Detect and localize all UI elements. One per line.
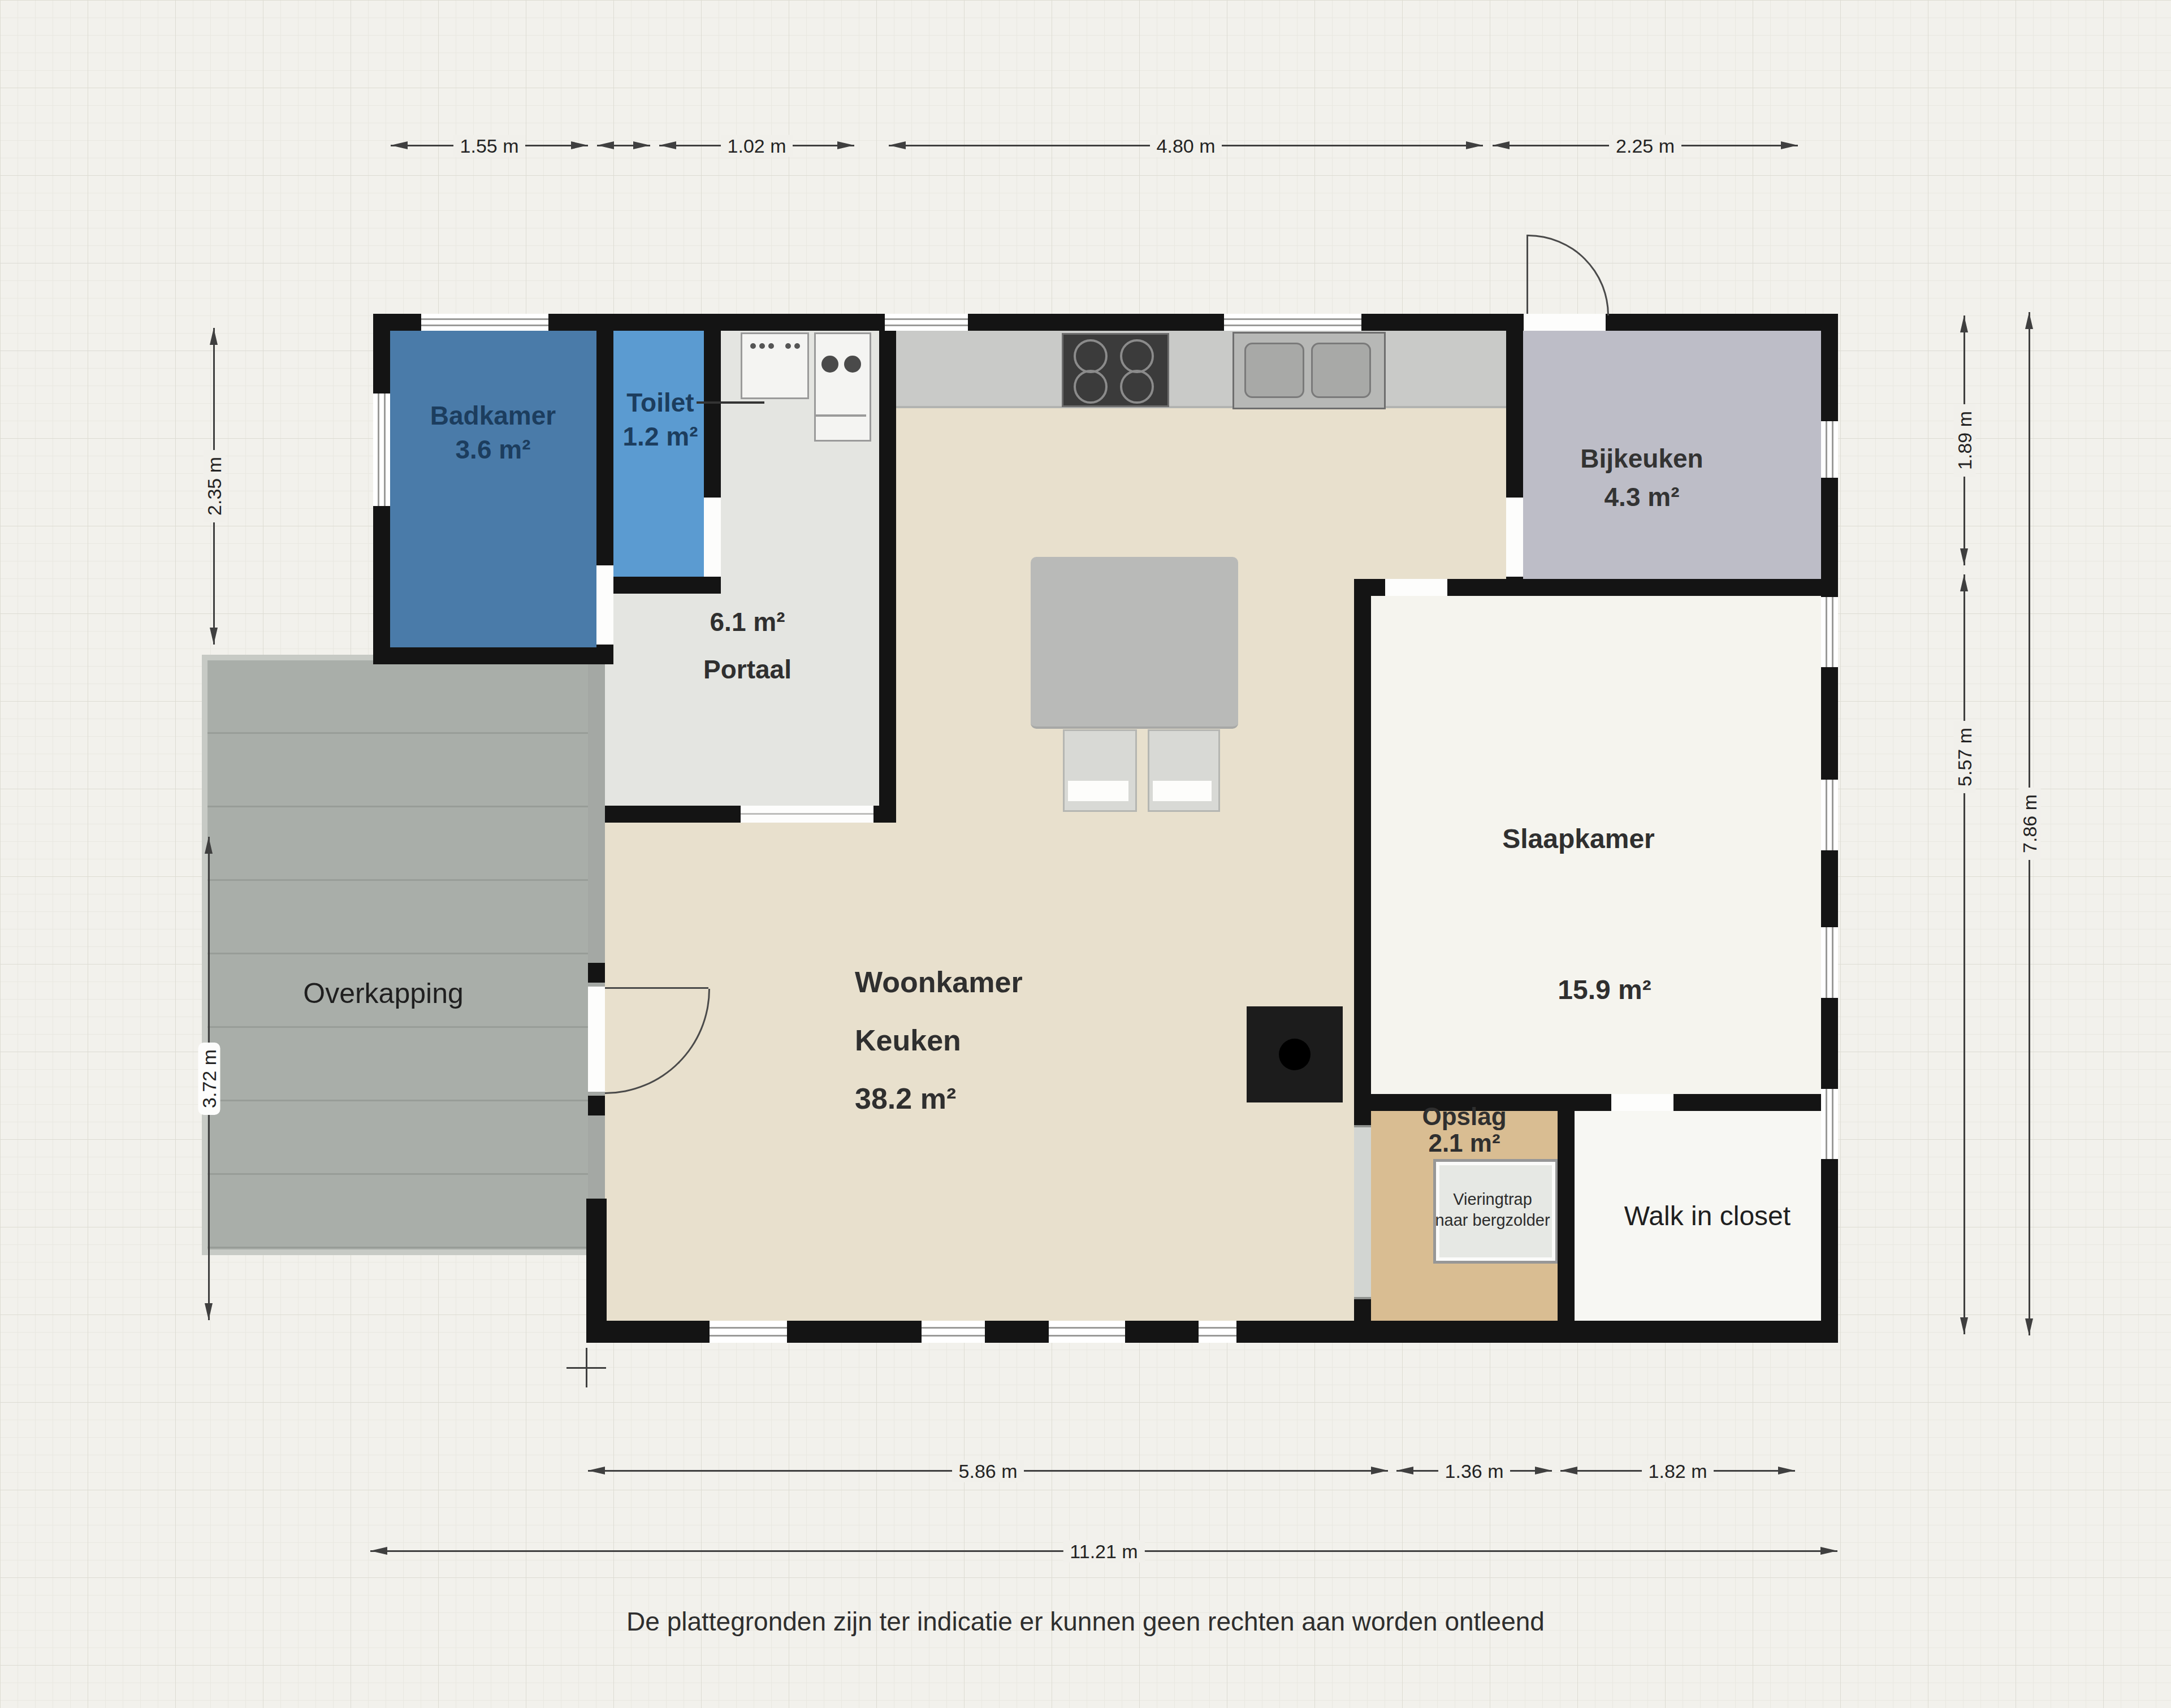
wood-stove-icon xyxy=(1247,1006,1343,1102)
woonkamer-line2: Keuken xyxy=(855,1011,1023,1070)
window xyxy=(922,1321,985,1343)
door-opening xyxy=(596,565,613,645)
bijkeuken-name: Bijkeuken xyxy=(1580,439,1703,478)
room-label-overkapping: Overkapping xyxy=(303,977,464,1010)
door-opening xyxy=(741,806,873,823)
walk-in-closet-name: Walk in closet xyxy=(1624,1200,1791,1231)
wall xyxy=(879,331,896,823)
dimension-label: 1.82 m xyxy=(1642,1460,1714,1482)
door-opening xyxy=(1385,579,1447,596)
room-label-slaapkamer-area: 15.9 m² xyxy=(1558,974,1651,1005)
dimension-label: 2.25 m xyxy=(1609,135,1681,157)
dimension-bottom-3: 1.82 m xyxy=(1560,1470,1795,1472)
wall xyxy=(373,314,1838,331)
woonkamer-line1: Woonkamer xyxy=(855,953,1023,1011)
door-opening xyxy=(1506,498,1523,577)
dimension-top-1: 1.55 m xyxy=(391,145,588,146)
bijkeuken-area: 4.3 m² xyxy=(1580,478,1703,516)
slaapkamer-name: Slaapkamer xyxy=(1502,823,1655,854)
toilet-name: Toilet xyxy=(623,386,698,420)
dimension-label: 5.86 m xyxy=(952,1460,1024,1482)
dimension-label: 5.57 m xyxy=(1954,721,1976,793)
wall xyxy=(613,577,721,594)
vieringtrap-line1: Vieringtrap xyxy=(1435,1189,1550,1210)
portaal-name: Portaal xyxy=(703,646,792,693)
dimension-label: 4.80 m xyxy=(1150,135,1222,157)
dimension-label: 1.36 m xyxy=(1438,1460,1511,1482)
chair xyxy=(1063,729,1137,812)
room-label-portaal: 6.1 m² Portaal xyxy=(703,598,792,693)
opslag-area: 2.1 m² xyxy=(1422,1130,1506,1156)
toilet-area: 1.2 m² xyxy=(623,420,698,453)
dimension-label: 11.21 m xyxy=(1063,1541,1144,1563)
double-sink-icon xyxy=(1232,332,1386,409)
dimension-right-2: 5.57 m xyxy=(1964,574,1965,1334)
room-label-badkamer: Badkamer 3.6 m² xyxy=(430,399,556,466)
dimension-label: 7.86 m xyxy=(2019,788,2041,860)
floor-plan: Badkamer 3.6 m² Toilet 1.2 m² 6.1 m² Por… xyxy=(0,0,2171,1708)
overkapping-name: Overkapping xyxy=(303,977,464,1010)
dimension-right-3: 7.86 m xyxy=(2029,312,2030,1335)
badkamer-area: 3.6 m² xyxy=(430,433,556,466)
window xyxy=(1049,1321,1125,1343)
dimension-label: 1.55 m xyxy=(453,135,526,157)
dimension-bottom-1: 5.86 m xyxy=(588,1470,1388,1472)
dining-table xyxy=(1031,557,1238,729)
dimension-top-2 xyxy=(597,145,650,146)
cooktop-icon xyxy=(1062,333,1169,407)
room-label-slaapkamer: Slaapkamer xyxy=(1502,823,1655,854)
kitchen-counter xyxy=(896,331,1506,408)
dimension-left-1: 2.35 m xyxy=(213,328,215,645)
dimension-left-2: 3.72 m xyxy=(208,837,210,1320)
room-label-vieringtrap: Vieringtrap naar bergzolder xyxy=(1435,1189,1550,1231)
door-opening xyxy=(588,987,605,1092)
dimension-top-5: 2.25 m xyxy=(1493,145,1798,146)
disclaimer-text: De plattegronden zijn ter indicatie er k… xyxy=(626,1606,1545,1637)
window xyxy=(1821,597,1838,667)
dimension-right-1: 1.89 m xyxy=(1964,315,1965,565)
dimension-label: 1.02 m xyxy=(721,135,793,157)
toilet-floor xyxy=(613,331,704,577)
room-label-opslag: Opslag 2.1 m² xyxy=(1422,1103,1506,1156)
window xyxy=(885,314,968,331)
room-label-bijkeuken: Bijkeuken 4.3 m² xyxy=(1580,439,1703,516)
door-opening xyxy=(704,498,721,577)
dimension-label: 2.35 m xyxy=(204,450,226,522)
portaal-area: 6.1 m² xyxy=(703,598,792,646)
room-label-walk-in-closet: Walk in closet xyxy=(1624,1200,1791,1231)
vieringtrap-line2: naar bergzolder xyxy=(1435,1210,1550,1231)
door-opening xyxy=(1524,314,1606,331)
dimension-bottom-total: 11.21 m xyxy=(370,1550,1837,1552)
dimension-top-4: 4.80 m xyxy=(889,145,1483,146)
sliding-door xyxy=(1354,1125,1371,1299)
window xyxy=(1224,314,1361,331)
boiler-sink-icon xyxy=(814,332,871,442)
door-arc xyxy=(1528,235,1609,315)
window xyxy=(1821,927,1838,998)
badkamer-floor xyxy=(390,331,596,647)
window xyxy=(710,1321,787,1343)
badkamer-name: Badkamer xyxy=(430,399,556,433)
chair xyxy=(1148,729,1220,812)
dimension-top-3: 1.02 m xyxy=(659,145,854,146)
wall xyxy=(373,647,613,664)
woonkamer-area: 38.2 m² xyxy=(855,1070,1023,1128)
wall xyxy=(1558,1111,1575,1321)
dimension-label: 3.72 m xyxy=(198,1043,220,1115)
label-leader-line xyxy=(697,401,764,404)
door-hinge xyxy=(588,1096,605,1115)
window xyxy=(373,394,390,506)
window xyxy=(1821,1089,1838,1159)
slaapkamer-area: 15.9 m² xyxy=(1558,974,1651,1005)
dimension-bottom-2: 1.36 m xyxy=(1396,1470,1552,1472)
glass-wall xyxy=(588,664,605,1199)
opslag-name: Opslag xyxy=(1422,1103,1506,1130)
window xyxy=(421,314,548,331)
room-label-woonkamer: Woonkamer Keuken 38.2 m² xyxy=(855,953,1023,1128)
overkapping-area xyxy=(202,655,599,1255)
window xyxy=(1821,780,1838,850)
door-opening xyxy=(1611,1094,1673,1111)
window xyxy=(1821,421,1838,478)
dimension-label: 1.89 m xyxy=(1954,404,1976,477)
washbasin-icon xyxy=(741,332,809,399)
door-hinge xyxy=(588,963,605,983)
corner-marker xyxy=(586,1348,587,1387)
room-label-toilet: Toilet 1.2 m² xyxy=(623,386,698,453)
window xyxy=(1199,1321,1236,1343)
